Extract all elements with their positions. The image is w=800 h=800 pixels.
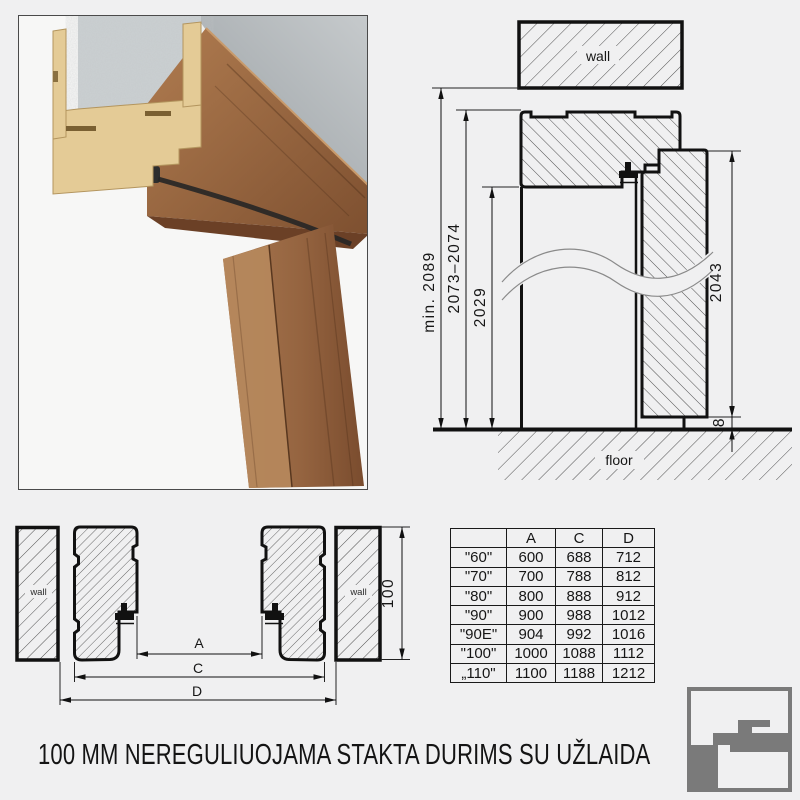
product-title: 100 MM NEREGULIUOJAMA STAKTA DURIMS SU U… [38, 739, 650, 772]
left-jamb-profile-section [75, 527, 138, 660]
value-d: 1016 [603, 625, 655, 644]
dim-overall-width: D [192, 683, 202, 699]
value-a: 600 [507, 548, 556, 567]
value-d: 1012 [603, 606, 655, 625]
size-table: A C D "60" 600 688 712 "70" 700 788 812 … [450, 528, 655, 683]
size-name: "90" [451, 606, 507, 625]
size-name: "90E" [451, 625, 507, 644]
value-d: 912 [603, 586, 655, 605]
value-c: 988 [556, 606, 603, 625]
size-name: „110" [451, 664, 507, 683]
value-d: 1212 [603, 664, 655, 683]
size-name: "60" [451, 548, 507, 567]
value-a: 800 [507, 586, 556, 605]
table-row: "100" 1000 1088 1112 [451, 644, 655, 663]
header-cell-name [451, 529, 507, 548]
value-a: 1100 [507, 664, 556, 683]
header-cell-c: C [556, 529, 603, 548]
dim-frame-outer-width: C [193, 660, 203, 676]
value-d: 1112 [603, 644, 655, 663]
brand-logo-icon [687, 687, 792, 792]
value-c: 888 [556, 586, 603, 605]
value-c: 688 [556, 548, 603, 567]
value-c: 788 [556, 567, 603, 586]
table-header-row: A C D [451, 529, 655, 548]
dim-min-total-height: min. 2089 [421, 251, 438, 333]
value-d: 712 [603, 548, 655, 567]
table-row: "80" 800 888 912 [451, 586, 655, 605]
value-c: 1188 [556, 664, 603, 683]
value-a: 904 [507, 625, 556, 644]
size-name: "70" [451, 567, 507, 586]
dim-leaf-height: 2043 [708, 262, 725, 302]
table-row: "90E" 904 992 1016 [451, 625, 655, 644]
horizontal-section-diagram: wall wall A C D 100 [10, 518, 430, 718]
table-row: "60" 600 688 712 [451, 548, 655, 567]
floor-label: floor [605, 452, 633, 468]
floor-hatch [498, 431, 792, 480]
right-wall-label: wall [349, 587, 366, 598]
frame-3d-render [19, 16, 367, 489]
left-wall-label: wall [29, 587, 46, 598]
right-jamb-profile-section [262, 527, 325, 660]
dim-floor-gap: 8 [711, 417, 728, 427]
table-row: „110" 1100 1188 1212 [451, 664, 655, 683]
header-cell-d: D [603, 529, 655, 548]
frame-3d-photo [18, 15, 368, 490]
wall-label: wall [585, 48, 610, 64]
table-row: "70" 700 788 812 [451, 567, 655, 586]
size-name: "80" [451, 586, 507, 605]
value-a: 1000 [507, 644, 556, 663]
vertical-section-diagram: wall floor [420, 10, 800, 500]
frame-profile-logo-shape [687, 689, 790, 792]
value-c: 1088 [556, 644, 603, 663]
table-row: "90" 900 988 1012 [451, 606, 655, 625]
dim-opening-height: 2029 [472, 287, 489, 327]
size-name: "100" [451, 644, 507, 663]
dim-frame-height: 2073–2074 [446, 222, 463, 313]
value-c: 992 [556, 625, 603, 644]
dim-opening-width: A [194, 635, 204, 651]
value-a: 900 [507, 606, 556, 625]
value-a: 700 [507, 567, 556, 586]
header-cell-a: A [507, 529, 556, 548]
dim-frame-depth: 100 [380, 578, 397, 608]
value-d: 812 [603, 567, 655, 586]
